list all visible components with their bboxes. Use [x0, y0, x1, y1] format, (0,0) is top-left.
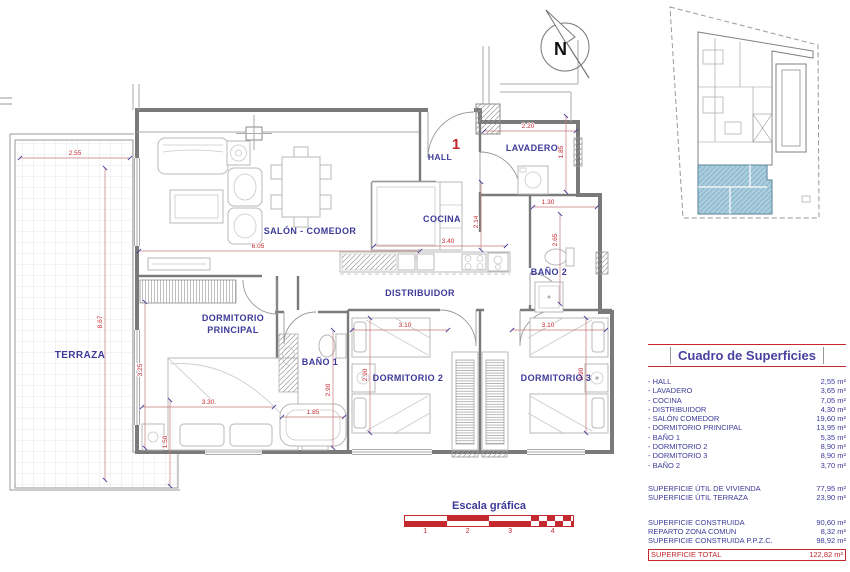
- scale-tick: 3: [489, 528, 532, 535]
- table-rule-top: [648, 344, 846, 345]
- furniture-salon: [148, 138, 331, 270]
- dim-label: 2.55: [69, 150, 82, 157]
- graphic-scale-title: Escala gráfica: [404, 500, 574, 512]
- label-dorm3: DORMITORIO 3: [521, 373, 592, 383]
- dim-label: 1.50: [162, 435, 169, 448]
- surface-row: - COCINA7,05 m²: [648, 396, 846, 405]
- scale-tick: 2: [447, 528, 490, 535]
- scale-tick: 4: [532, 528, 575, 535]
- surface-row: REPARTO ZONA COMUN8,32 m²: [648, 527, 846, 536]
- dim-label: 2.90: [325, 383, 332, 396]
- unit-number: 1: [452, 136, 460, 153]
- dim-label: 2.65: [552, 233, 559, 246]
- surface-row: SUPERFICIE CONSTRUIDA P.P.Z.C.98,92 m²: [648, 536, 846, 545]
- surface-rooms-block: - HALL2,55 m² - LAVADERO3,65 m² - COCINA…: [648, 377, 846, 470]
- surface-row-label: - DISTRIBUIDOR: [648, 405, 706, 414]
- surface-row: SUPERFICIE ÚTIL TERRAZA23,90 m²: [648, 493, 846, 502]
- scale-tick: 1: [404, 528, 447, 535]
- surface-useful-block: SUPERFICIE ÚTIL DE VIVIENDA77,95 m² SUPE…: [648, 484, 846, 503]
- surface-table-header: Cuadro de Superficies: [648, 347, 846, 364]
- surface-row-value: 5,35 m²: [821, 433, 846, 442]
- surface-row-value: 90,60 m²: [816, 518, 846, 527]
- label-distribuidor: DISTRIBUIDOR: [385, 288, 455, 298]
- surface-row-value: 2,55 m²: [821, 377, 846, 386]
- window-dorm2: [352, 449, 432, 456]
- surface-table: Cuadro de Superficies - HALL2,55 m² - LA…: [648, 344, 846, 561]
- surface-total-row: SUPERFICIE TOTAL 122,82 m²: [648, 549, 846, 561]
- label-hall: HALL: [428, 152, 452, 162]
- label-lavadero: LAVADERO: [506, 143, 558, 153]
- surface-row-value: 13,95 m²: [816, 423, 846, 432]
- dim-label: 1.85: [558, 145, 565, 158]
- surface-total-label: SUPERFICIE TOTAL: [651, 550, 721, 560]
- surface-row-label: - DORMITORIO 3: [648, 451, 707, 460]
- furniture-bano2: [535, 248, 608, 312]
- surface-row-label: SUPERFICIE ÚTIL DE VIVIENDA: [648, 484, 761, 493]
- furniture-bano1: [279, 334, 346, 446]
- dim-label: 3.30: [202, 399, 215, 406]
- window-dorm3: [527, 449, 585, 456]
- graphic-scale: Escala gráfica 1 2 3 4: [404, 500, 574, 535]
- surface-row-label: - COCINA: [648, 396, 682, 405]
- dim-label: 3.10: [542, 322, 555, 329]
- surface-row-value: 7,05 m²: [821, 396, 846, 405]
- dim-label: 1.30: [542, 199, 555, 206]
- surface-row-label: SUPERFICIE CONSTRUIDA P.P.Z.C.: [648, 536, 773, 545]
- label-terraza: TERRAZA: [55, 350, 106, 361]
- dim-label: 2.20: [522, 123, 535, 130]
- surface-row-value: 23,90 m²: [816, 493, 846, 502]
- north-letter: N: [554, 39, 567, 59]
- surface-row-value: 77,95 m²: [816, 484, 846, 493]
- surface-row-label: - BAÑO 2: [648, 461, 680, 470]
- window-salon: [134, 158, 141, 246]
- key-plan: [670, 7, 819, 218]
- scale-segment: [447, 516, 489, 526]
- surface-row: - LAVADERO3,65 m²: [648, 386, 846, 395]
- surface-row-label: - LAVADERO: [648, 386, 692, 395]
- dim-label: 6.05: [252, 243, 265, 250]
- floorplan-sheet: 2.55 8.67 1.50 6.05 3.40 2.14 2.20 1.85 …: [0, 0, 850, 572]
- surface-row: - DORMITORIO 28,90 m²: [648, 442, 846, 451]
- surface-row-label: - DORMITORIO 2: [648, 442, 707, 451]
- dim-label: 3.40: [442, 238, 455, 245]
- shutter-box: [574, 138, 582, 166]
- label-dorm-principal-1: DORMITORIO: [202, 313, 264, 323]
- surface-row-label: REPARTO ZONA COMUN: [648, 527, 736, 536]
- surface-total-value: 122,82 m²: [809, 550, 843, 560]
- surface-row-value: 98,92 m²: [816, 536, 846, 545]
- dim-label: 2.14: [473, 215, 480, 228]
- graphic-scale-ticks: 1 2 3 4: [404, 528, 574, 535]
- surface-row-label: - BAÑO 1: [648, 433, 680, 442]
- label-cocina: COCINA: [423, 214, 461, 224]
- surface-row-value: 8,90 m²: [821, 442, 846, 451]
- surface-row: SUPERFICIE CONSTRUIDA90,60 m²: [648, 518, 846, 527]
- furniture-lavadero: [518, 166, 548, 194]
- surface-row: - HALL2,55 m²: [648, 377, 846, 386]
- surface-row: - BAÑO 23,70 m²: [648, 461, 846, 470]
- label-bano2: BAÑO 2: [531, 267, 567, 277]
- label-dorm-principal-2: PRINCIPAL: [207, 325, 259, 335]
- surface-row: SUPERFICIE ÚTIL DE VIVIENDA77,95 m²: [648, 484, 846, 493]
- surface-row-label: - HALL: [648, 377, 671, 386]
- scale-segment: [405, 516, 447, 526]
- surface-row: - DORMITORIO 38,90 m²: [648, 451, 846, 460]
- surface-row: - BAÑO 15,35 m²: [648, 433, 846, 442]
- surface-built-block: SUPERFICIE CONSTRUIDA90,60 m² REPARTO ZO…: [648, 518, 846, 546]
- surface-row-label: - DORMITORIO PRINCIPAL: [648, 423, 742, 432]
- surface-row-value: 19,60 m²: [816, 414, 846, 423]
- scale-segment: [489, 516, 531, 526]
- dim-label: 8.67: [97, 315, 104, 328]
- table-rule-under-title: [648, 366, 846, 367]
- surface-row-label: SUPERFICIE CONSTRUIDA: [648, 518, 745, 527]
- surface-row-value: 4,30 m²: [821, 405, 846, 414]
- surface-row-value: 3,65 m²: [821, 386, 846, 395]
- dim-label: 1.85: [307, 409, 320, 416]
- surface-row-label: SUPERFICIE ÚTIL TERRAZA: [648, 493, 748, 502]
- north-arrow: N: [541, 10, 589, 78]
- dim-label: 3.25: [137, 363, 144, 376]
- scale-segment: [531, 516, 573, 526]
- graphic-scale-bar: [404, 515, 574, 527]
- label-bano1: BAÑO 1: [302, 357, 338, 367]
- window-ppal: [134, 330, 141, 425]
- surface-table-title: Cuadro de Superficies: [670, 347, 824, 364]
- dim-label: 3.10: [399, 322, 412, 329]
- label-dorm2: DORMITORIO 2: [373, 373, 444, 383]
- key-plan-highlighted-unit: [698, 165, 772, 214]
- surface-row: - SALÓN COMEDOR19,60 m²: [648, 414, 846, 423]
- dim-label: 2.90: [362, 368, 369, 381]
- surface-row-value: 8,90 m²: [821, 451, 846, 460]
- surface-row: - DORMITORIO PRINCIPAL13,95 m²: [648, 423, 846, 432]
- surface-row: - DISTRIBUIDOR4,30 m²: [648, 405, 846, 414]
- surface-row-value: 3,70 m²: [821, 461, 846, 470]
- label-salon: SALÓN - COMEDOR: [264, 225, 357, 236]
- surface-row-label: - SALÓN COMEDOR: [648, 414, 719, 423]
- surface-row-value: 8,32 m²: [821, 527, 846, 536]
